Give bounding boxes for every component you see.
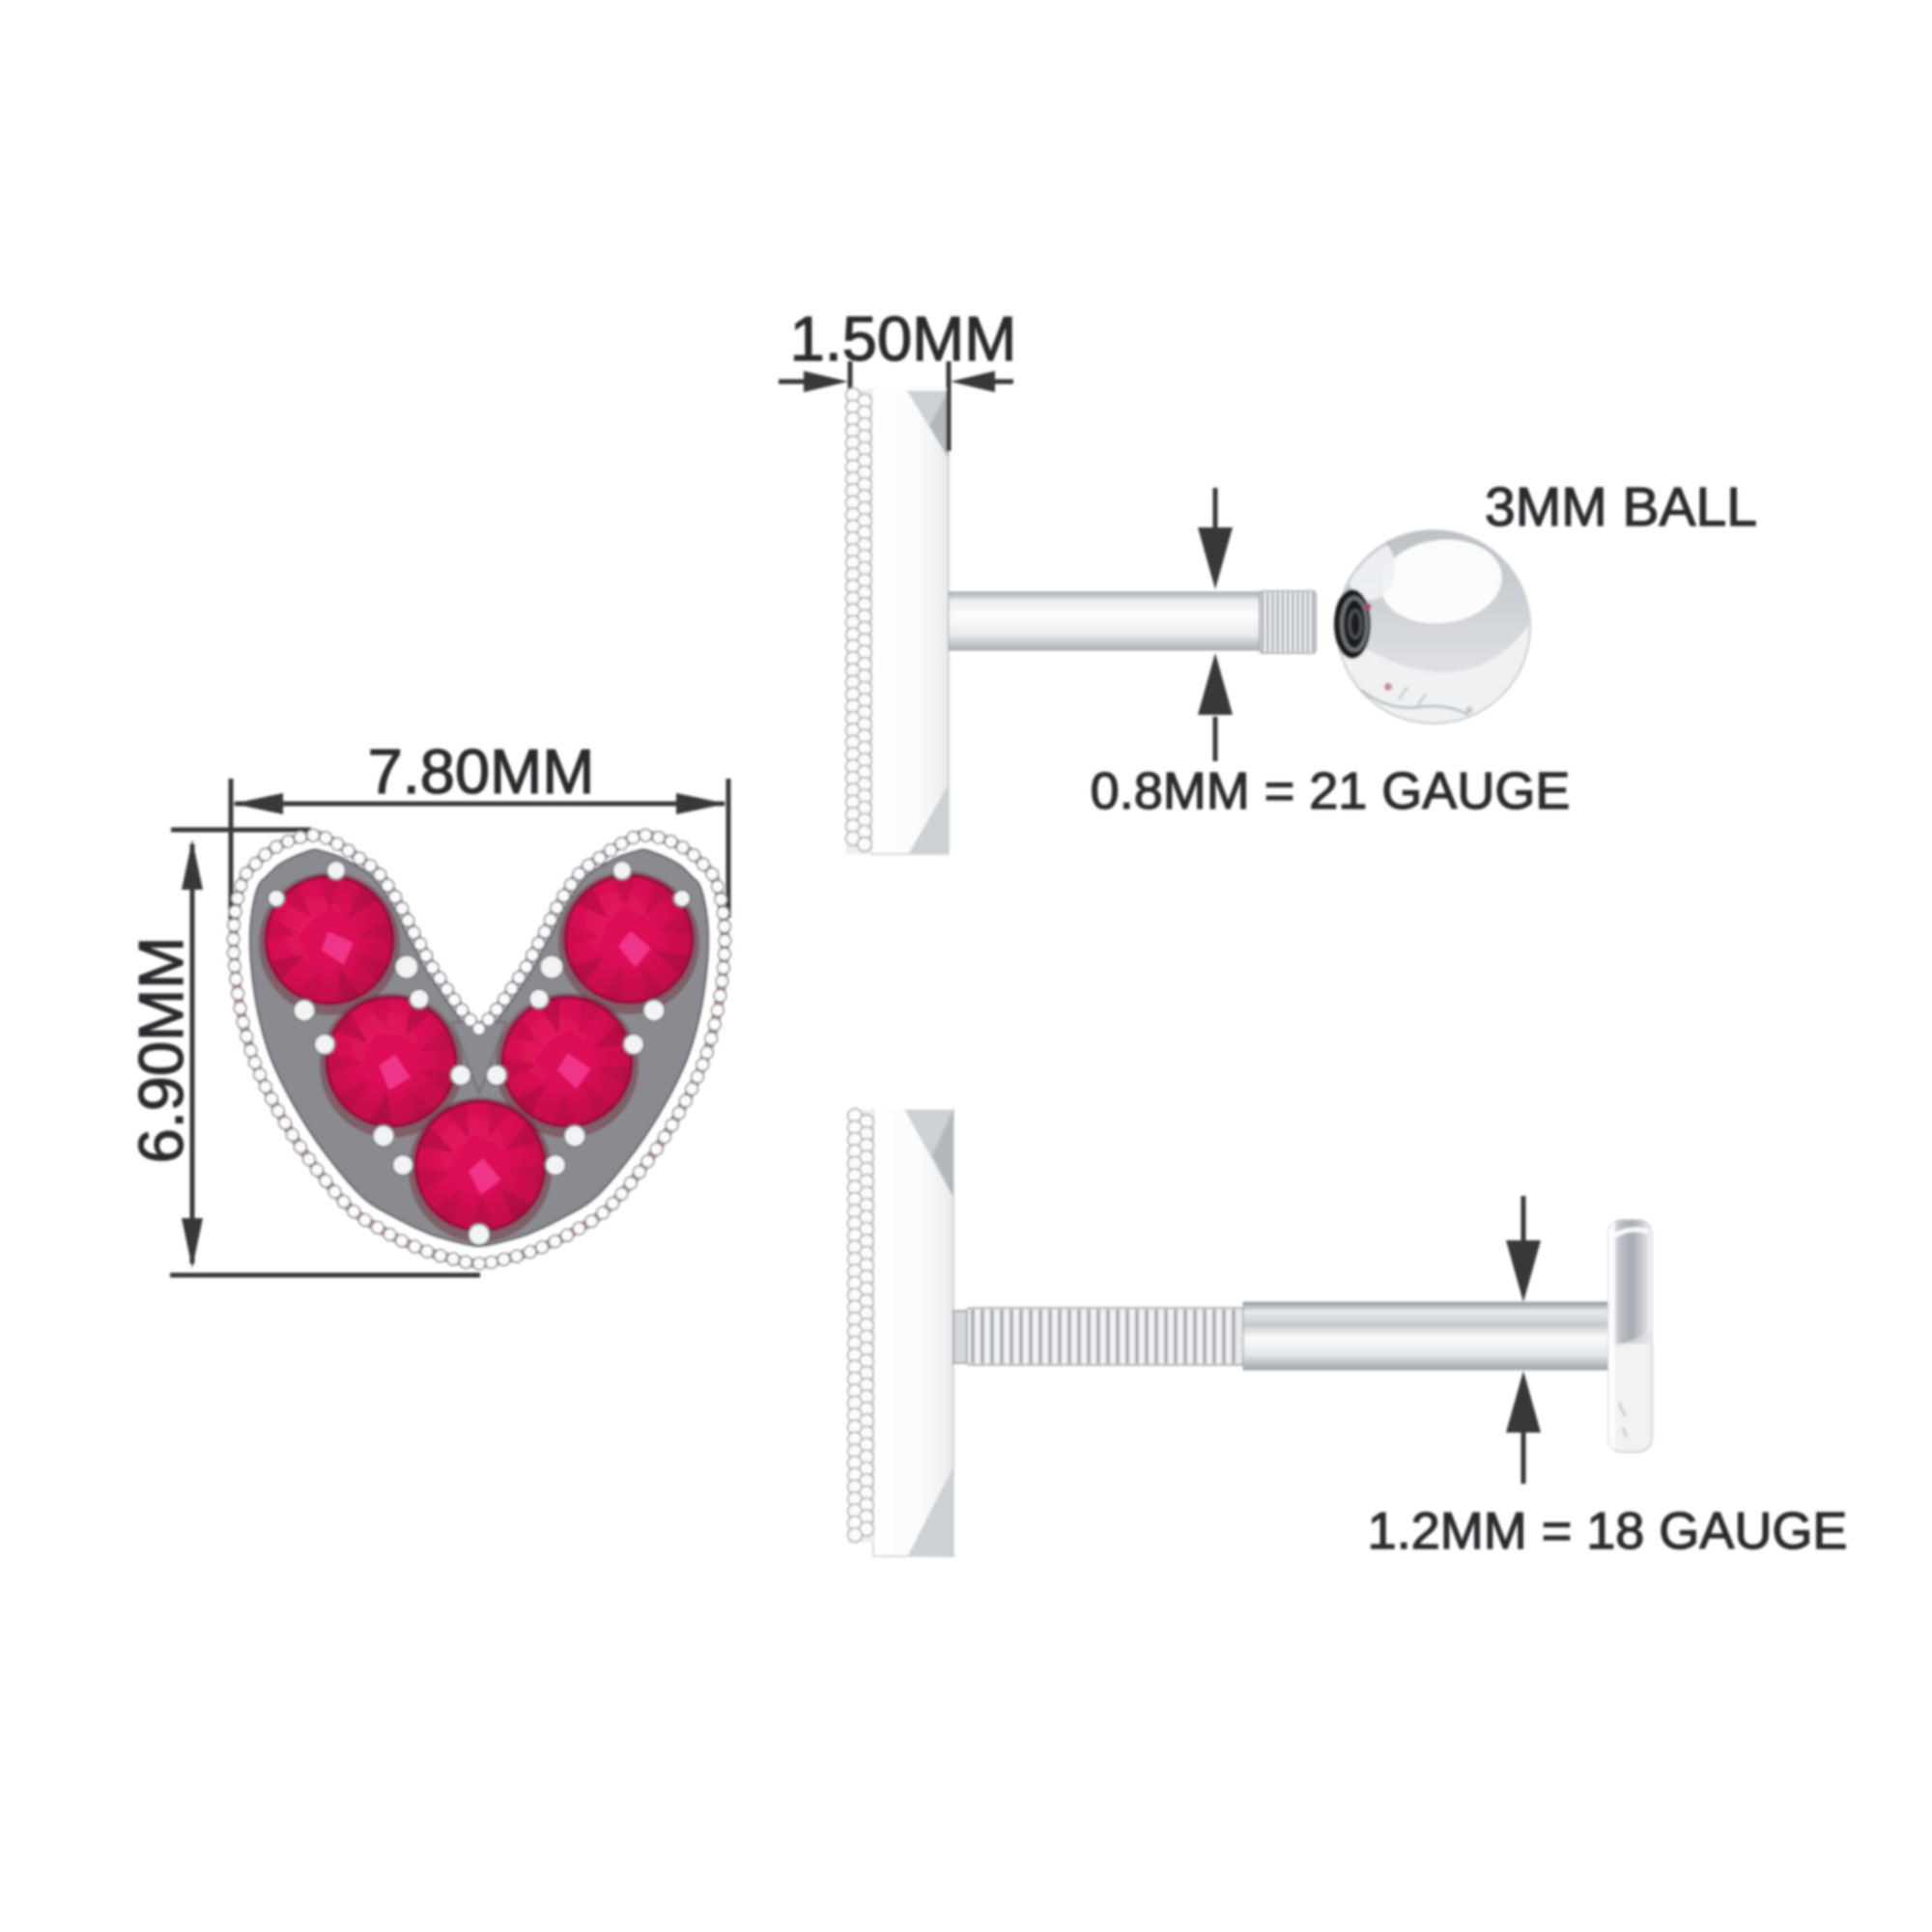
svg-text:6.90MM: 6.90MM <box>126 937 196 1164</box>
svg-text:0.8MM = 21 GAUGE: 0.8MM = 21 GAUGE <box>1091 762 1571 820</box>
svg-text:1.2MM = 18 GAUGE: 1.2MM = 18 GAUGE <box>1368 1502 1848 1560</box>
svg-text:3MM BALL: 3MM BALL <box>1485 476 1757 538</box>
svg-text:7.80MM: 7.80MM <box>368 736 595 807</box>
svg-text:1.50MM: 1.50MM <box>790 303 1017 374</box>
